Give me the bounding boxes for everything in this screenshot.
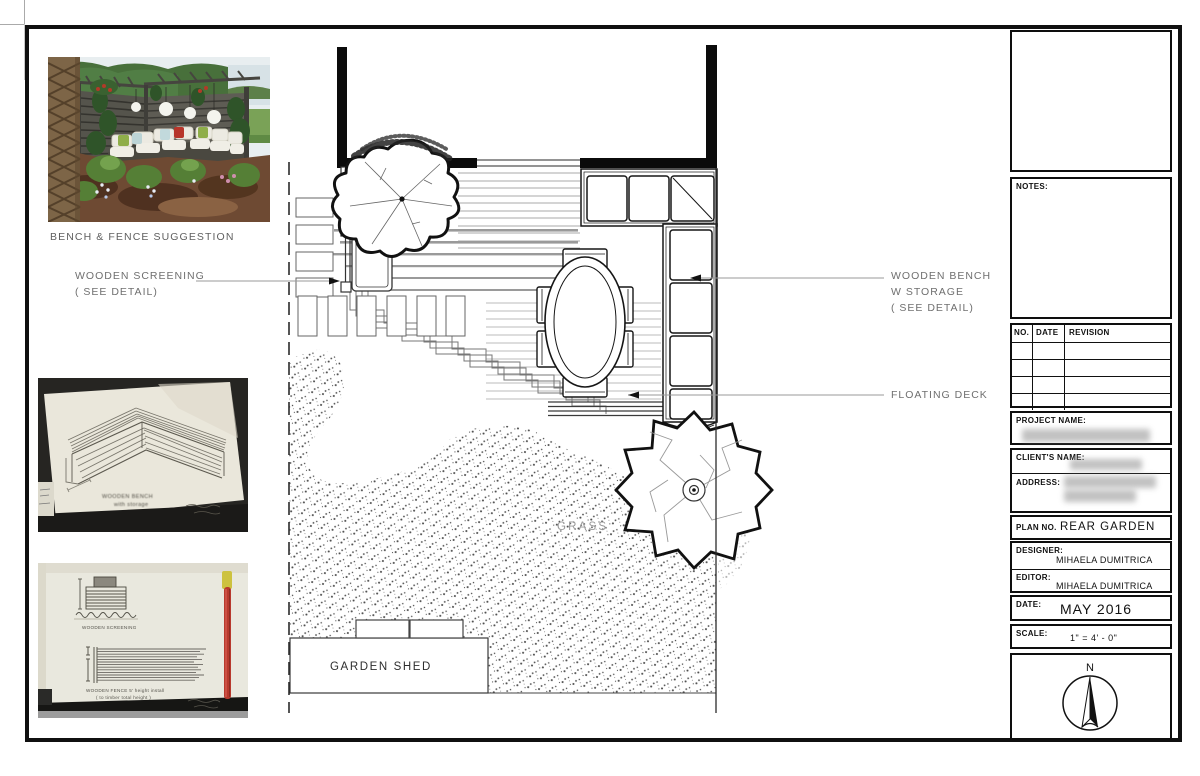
fence-sketch-photo: WOODEN SCREENING WOODEN FENCE 5' height … xyxy=(38,563,248,718)
label-floating-deck: FLOATING DECK xyxy=(891,387,988,403)
scale-label: SCALE: xyxy=(1016,629,1048,638)
scale-value: 1" = 4' - 0" xyxy=(1070,633,1117,643)
plan-sheet: WOODEN BENCH with storage xyxy=(0,0,1200,776)
label-wooden-screening-line1: WOODEN SCREENING xyxy=(75,268,205,284)
label-wooden-screening: WOODEN SCREENING ( SEE DETAIL) xyxy=(75,268,205,300)
bench-sketch-caption-2: with storage xyxy=(113,502,148,508)
label-grass: GRASS xyxy=(557,521,608,533)
plan-no-label: PLAN NO. xyxy=(1016,523,1057,532)
scale-box: SCALE: 1" = 4' - 0" xyxy=(1010,624,1172,649)
rev-col-date: DATE xyxy=(1036,328,1058,337)
revision-row xyxy=(1012,393,1170,410)
designer-editor-box: DESIGNER: MIHAELA DUMITRICA EDITOR: MIHA… xyxy=(1010,541,1172,593)
title-block-empty-box xyxy=(1010,30,1172,172)
label-wooden-bench-line2: W STORAGE xyxy=(891,284,991,300)
label-wooden-screening-line2: ( SEE DETAIL) xyxy=(75,284,205,300)
date-value: MAY 2016 xyxy=(1060,601,1132,617)
redacted-address-1 xyxy=(1064,476,1156,488)
revision-row xyxy=(1012,359,1170,376)
foreground-garden xyxy=(48,153,270,222)
photo-caption: BENCH & FENCE SUGGESTION xyxy=(50,231,235,243)
bench-fence-photo xyxy=(48,57,270,222)
date-box: DATE: MAY 2016 xyxy=(1010,595,1172,621)
notes-label: NOTES: xyxy=(1016,182,1048,191)
label-wooden-bench: WOODEN BENCH W STORAGE ( SEE DETAIL) xyxy=(891,268,991,316)
plan-no-box: PLAN NO. REAR GARDEN xyxy=(1010,515,1172,540)
side-planters xyxy=(296,198,333,297)
date-label: DATE: xyxy=(1016,600,1041,609)
designer-label: DESIGNER: xyxy=(1016,546,1063,555)
revision-table: NO. DATE REVISION xyxy=(1010,323,1172,408)
fence-sketch-caption-2: ( to timber total height ) xyxy=(96,695,151,700)
compass-box: N xyxy=(1010,653,1172,740)
compass-north-letter: N xyxy=(1086,662,1094,674)
project-name-label: PROJECT NAME: xyxy=(1016,416,1086,425)
label-garden-shed: GARDEN SHED xyxy=(330,661,432,673)
revision-row xyxy=(1012,376,1170,393)
plan-no-value: REAR GARDEN xyxy=(1060,521,1155,533)
redacted-client-name xyxy=(1070,459,1142,470)
bench-sketch-caption-1: WOODEN BENCH xyxy=(102,494,153,500)
fence-sketch-caption-1: WOODEN FENCE 5' height install xyxy=(86,688,165,693)
redacted-project-name xyxy=(1022,429,1150,442)
redacted-address-2 xyxy=(1064,490,1136,502)
notes-box: NOTES: xyxy=(1010,177,1172,319)
rev-col-no: NO. xyxy=(1014,328,1029,337)
screening-sketch-caption: WOODEN SCREENING xyxy=(82,625,137,630)
client-address-box: CLIENT'S NAME: ADDRESS: xyxy=(1010,448,1172,513)
revision-row xyxy=(1012,342,1170,359)
floating-deck-boards xyxy=(458,173,580,248)
palm-trunk xyxy=(48,57,80,222)
tree-1 xyxy=(332,136,458,257)
designer-value: MIHAELA DUMITRICA xyxy=(1056,555,1153,565)
editor-value: MIHAELA DUMITRICA xyxy=(1056,581,1153,591)
label-wooden-bench-line3: ( SEE DETAIL) xyxy=(891,300,991,316)
project-name-box: PROJECT NAME: xyxy=(1010,411,1172,445)
label-wooden-bench-line1: WOODEN BENCH xyxy=(891,268,991,284)
north-compass: N xyxy=(1012,655,1170,738)
editor-label: EDITOR: xyxy=(1016,573,1051,582)
bench-sketch-photo: WOODEN BENCH with storage xyxy=(38,378,248,532)
rev-col-revision: REVISION xyxy=(1069,328,1110,337)
address-label: ADDRESS: xyxy=(1016,478,1060,487)
fence-thin-section xyxy=(477,160,580,166)
